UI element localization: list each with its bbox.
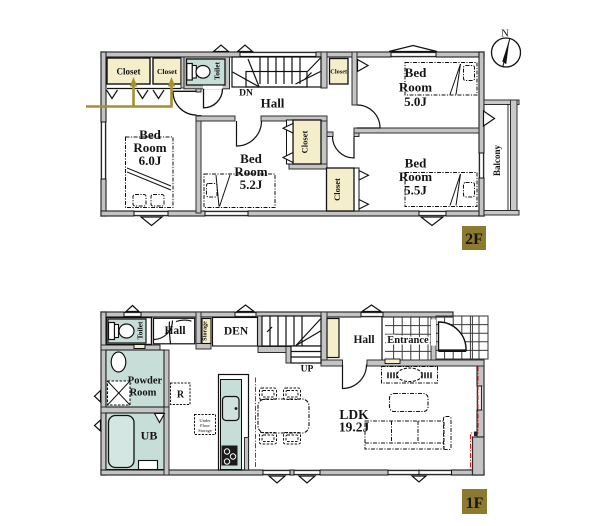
svg-text:2F: 2F (465, 231, 483, 248)
svg-text:Storage: Storage (198, 428, 212, 433)
svg-text:6.0J: 6.0J (139, 153, 162, 168)
svg-text:Toilet: Toilet (136, 321, 145, 340)
svg-text:Powder: Powder (128, 376, 163, 387)
svg-text:Closet: Closet (157, 67, 177, 76)
svg-text:Hall: Hall (261, 96, 285, 111)
svg-text:Balcony: Balcony (492, 145, 502, 177)
svg-text:Hall: Hall (353, 334, 374, 346)
svg-text:Hall: Hall (164, 325, 185, 337)
svg-text:Storage: Storage (203, 321, 209, 341)
svg-text:DEN: DEN (224, 326, 249, 338)
svg-text:Bed: Bed (405, 65, 427, 80)
svg-text:Entrance: Entrance (387, 335, 429, 346)
svg-text:5.2J: 5.2J (240, 177, 263, 192)
svg-text:R: R (177, 390, 185, 401)
svg-text:Toilet: Toilet (213, 61, 222, 80)
svg-text:Closet: Closet (117, 67, 141, 77)
svg-text:Room: Room (399, 80, 432, 95)
svg-text:5.5J: 5.5J (404, 183, 427, 198)
svg-text:Room: Room (130, 388, 157, 399)
svg-text:1F: 1F (466, 495, 484, 512)
svg-text:Closet: Closet (332, 178, 342, 201)
svg-text:UB: UB (141, 429, 158, 443)
svg-text:UP: UP (301, 365, 314, 375)
svg-text:N: N (501, 29, 509, 40)
svg-text:Closet: Closet (330, 69, 348, 76)
svg-text:DN: DN (239, 89, 253, 99)
svg-text:5.0J: 5.0J (404, 94, 427, 109)
svg-text:Closet: Closet (300, 131, 310, 154)
